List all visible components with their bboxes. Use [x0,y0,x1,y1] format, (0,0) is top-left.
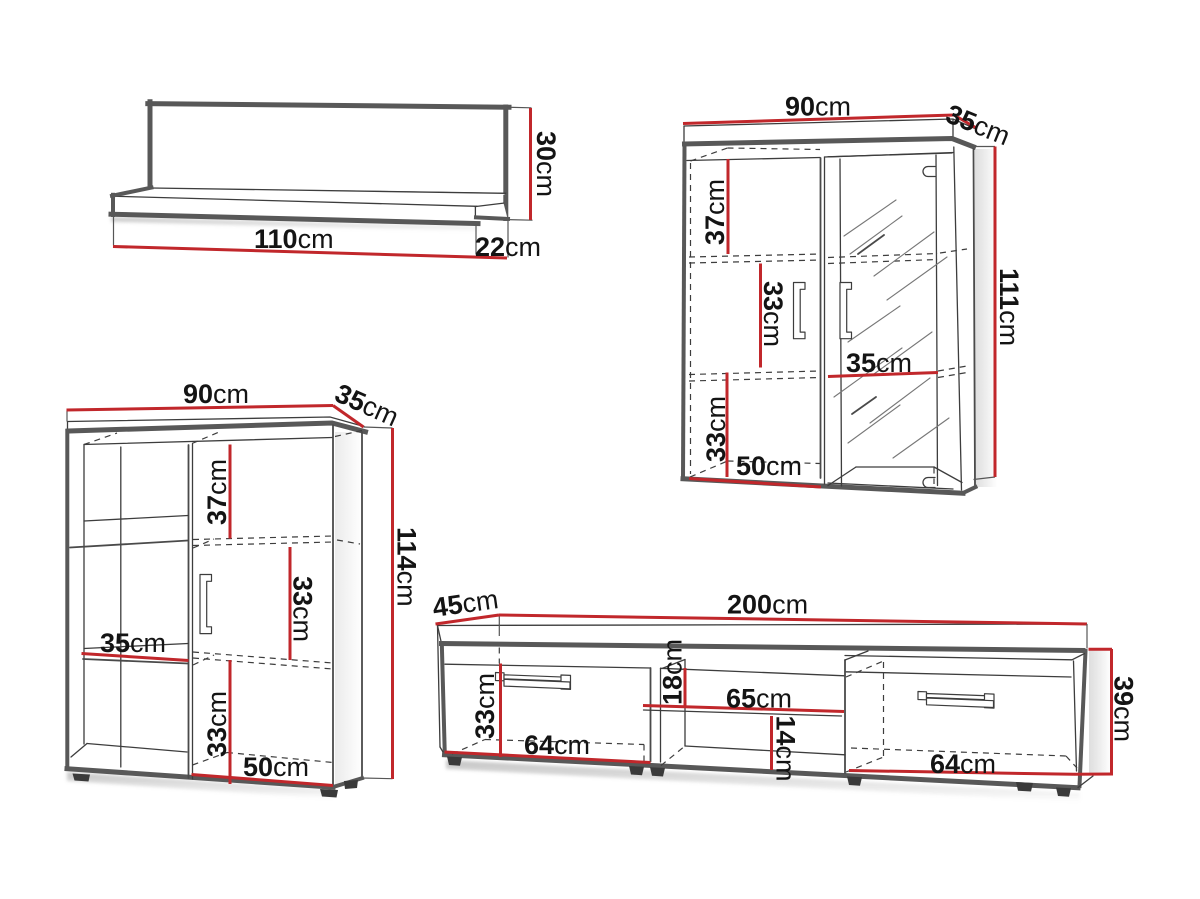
svg-text:33cm: 33cm [701,396,731,462]
svg-text:33cm: 33cm [202,691,232,757]
svg-text:33cm: 33cm [758,281,788,347]
svg-text:30cm: 30cm [531,131,561,197]
svg-text:50cm: 50cm [736,451,802,481]
svg-text:64cm: 64cm [524,730,590,760]
svg-text:65cm: 65cm [726,684,792,714]
svg-text:200cm: 200cm [727,590,808,620]
svg-text:14cm: 14cm [771,716,801,782]
svg-text:90cm: 90cm [785,92,851,122]
svg-text:37cm: 37cm [700,179,730,245]
svg-text:18cm: 18cm [658,639,688,705]
svg-text:111cm: 111cm [994,268,1024,346]
svg-text:39cm: 39cm [1109,676,1139,742]
svg-text:35cm: 35cm [100,628,166,658]
svg-text:35cm: 35cm [846,348,912,378]
svg-text:37cm: 37cm [202,459,232,525]
svg-text:90cm: 90cm [183,379,249,409]
svg-text:22cm: 22cm [475,232,541,262]
svg-text:33cm: 33cm [288,576,318,642]
svg-text:33cm: 33cm [470,673,500,739]
svg-text:114cm: 114cm [392,527,422,607]
svg-text:64cm: 64cm [930,749,996,779]
svg-text:50cm: 50cm [243,752,309,782]
svg-text:110cm: 110cm [254,224,334,254]
